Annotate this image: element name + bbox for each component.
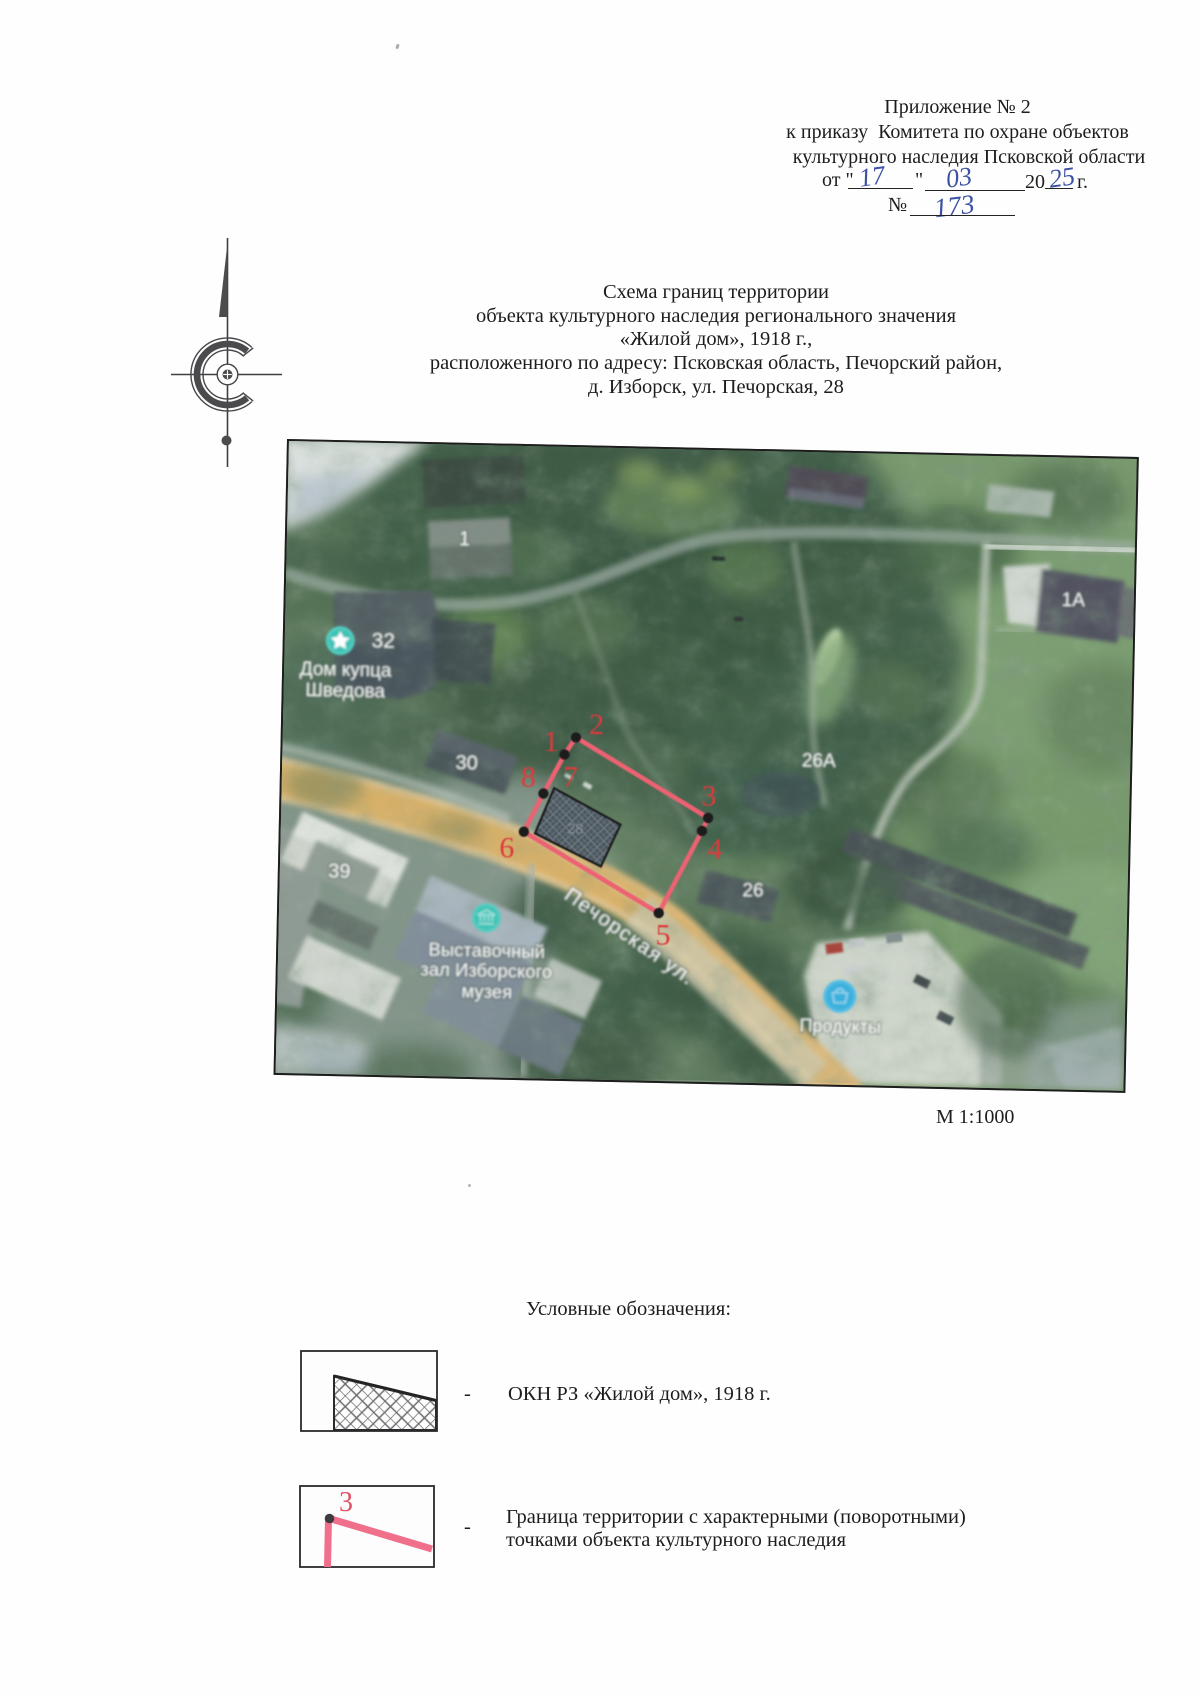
svg-text:26А: 26А — [802, 750, 837, 772]
svg-text:6: 6 — [499, 831, 515, 864]
svg-text:3: 3 — [339, 1487, 353, 1518]
svg-text:7: 7 — [563, 760, 579, 793]
svg-text:5: 5 — [655, 918, 671, 951]
svg-text:8: 8 — [521, 761, 537, 794]
svg-text:2: 2 — [589, 708, 605, 741]
svg-text:зал Изборского: зал Изборского — [420, 958, 552, 982]
svg-text:музея: музея — [461, 980, 512, 1002]
svg-text:1А: 1А — [1061, 590, 1085, 611]
svg-text:1: 1 — [459, 528, 471, 550]
svg-text:Продукты: Продукты — [799, 1015, 881, 1037]
svg-text:3: 3 — [701, 779, 717, 812]
svg-text:Шведова: Шведова — [305, 680, 385, 703]
svg-text:4: 4 — [707, 832, 723, 865]
svg-text:1: 1 — [543, 725, 559, 758]
svg-text:Дом купца: Дом купца — [300, 659, 393, 682]
svg-text:30: 30 — [455, 752, 478, 774]
svg-text:39: 39 — [328, 860, 351, 882]
svg-text:26: 26 — [742, 880, 764, 901]
svg-text:28: 28 — [567, 821, 584, 838]
svg-text:32: 32 — [371, 629, 395, 652]
